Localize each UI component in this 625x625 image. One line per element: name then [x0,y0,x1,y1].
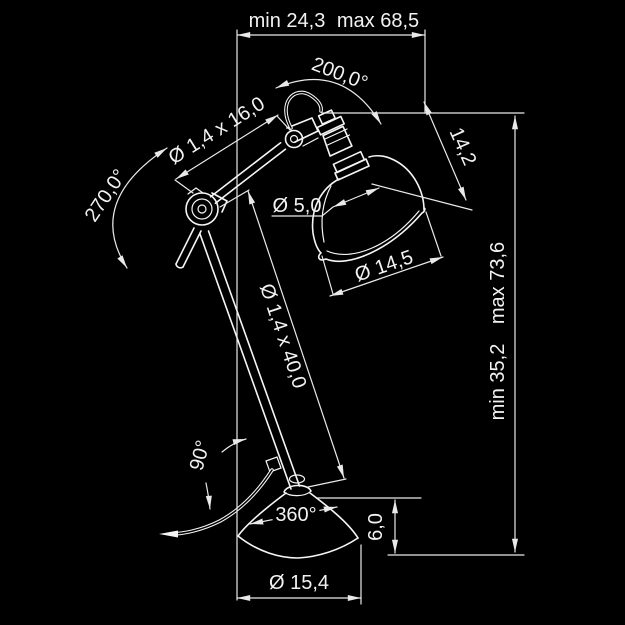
height-max-label: max 73,6 [487,242,509,324]
background [0,0,625,625]
height-min-label: min 35,2 [487,344,509,421]
base-rotation-label: 360° [275,504,316,526]
base-height-label: 6,0 [365,513,387,541]
width-max-label: max 68,5 [337,10,419,32]
socket-diameter-label: Ø 5,0 [273,195,322,217]
width-min-label: min 24,3 [249,10,326,32]
lamp-technical-drawing-canvas: min 24,3 max 68,5 min 35,2 max 73,6 200,… [0,0,625,625]
technical-drawing: min 24,3 max 68,5 min 35,2 max 73,6 200,… [0,0,625,625]
base-diameter-label: Ø 15,4 [269,572,329,594]
